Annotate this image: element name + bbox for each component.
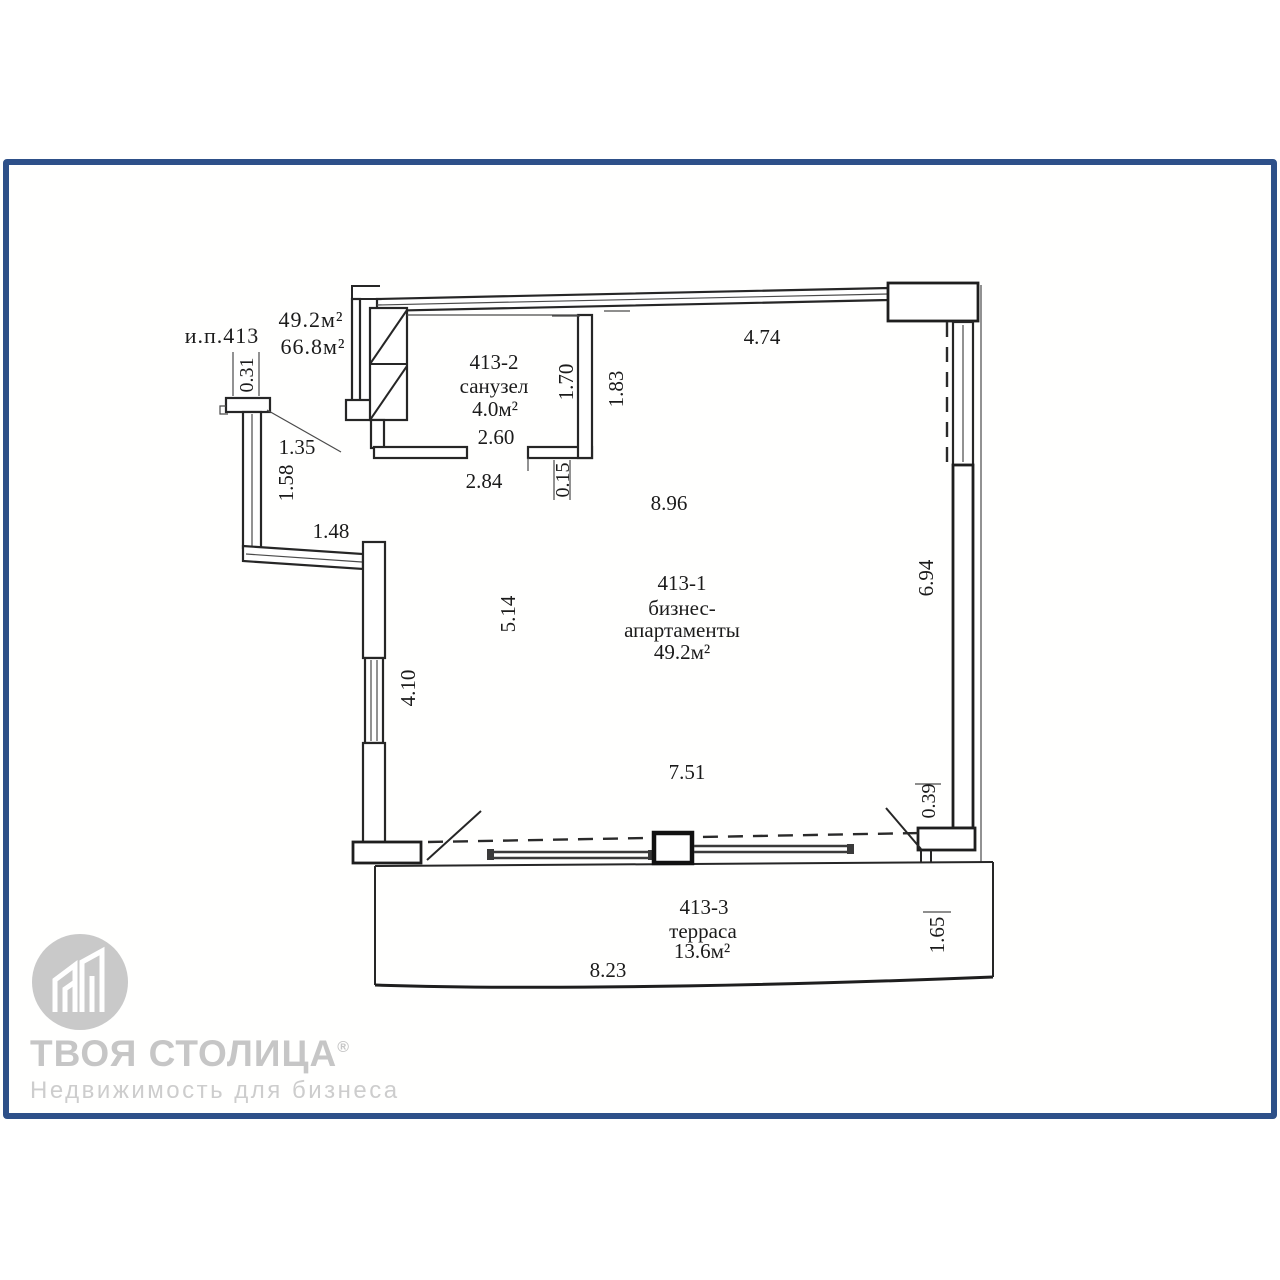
dim-1-35: 1.35 xyxy=(279,435,316,459)
bathroom-id: 413-2 xyxy=(470,350,519,374)
dim-2-60: 2.60 xyxy=(478,425,515,449)
apartment-name2: апартаменты xyxy=(624,618,740,642)
labels: и.п.413 49.2м² 66.8м² 0.31 1.35 1.58 1.4… xyxy=(185,307,949,982)
dim-4-74: 4.74 xyxy=(744,325,781,349)
bathroom-area: 4.0м² xyxy=(472,397,518,421)
unit-label: и.п.413 xyxy=(185,323,260,348)
agency-logo-title: ТВОЯ СТОЛИЦА® xyxy=(30,1033,400,1075)
apartment-name1: бизнес- xyxy=(648,596,716,620)
dim-1-83: 1.83 xyxy=(604,371,628,408)
dim-1-48: 1.48 xyxy=(313,519,350,543)
dim-4-10: 4.10 xyxy=(396,670,420,707)
apartment-id: 413-1 xyxy=(658,571,707,595)
registered-mark: ® xyxy=(337,1039,350,1056)
column xyxy=(654,833,692,863)
terrace-area: 13.6м² xyxy=(674,939,730,963)
scanned-floor-plan-page: и.п.413 49.2м² 66.8м² 0.31 1.35 1.58 1.4… xyxy=(0,0,1280,1280)
dim-2-84: 2.84 xyxy=(466,469,503,493)
dim-7-51: 7.51 xyxy=(669,760,706,784)
dim-1-58: 1.58 xyxy=(274,465,298,502)
vent-shaft xyxy=(370,308,407,420)
agency-logo: ТВОЯ СТОЛИЦА® Недвижимость для бизнеса xyxy=(30,932,400,1105)
dim-0-15: 0.15 xyxy=(552,463,574,498)
dim-8-96: 8.96 xyxy=(651,491,688,515)
apartment-area: 49.2м² xyxy=(654,640,710,664)
dim-0-31: 0.31 xyxy=(236,358,258,393)
agency-logo-icon xyxy=(30,932,130,1032)
agency-logo-subtitle: Недвижимость для бизнеса xyxy=(30,1077,400,1105)
dim-8-23: 8.23 xyxy=(590,958,627,982)
bathroom-name: санузел xyxy=(460,374,529,398)
balcony-glazing xyxy=(427,808,921,863)
dim-1-70: 1.70 xyxy=(554,364,578,401)
dim-0-39: 0.39 xyxy=(918,784,940,819)
area-line2: 66.8м² xyxy=(280,334,345,359)
dim-5-14: 5.14 xyxy=(496,595,520,632)
terrace-id: 413-3 xyxy=(680,895,729,919)
dim-6-94: 6.94 xyxy=(914,559,938,596)
area-line1: 49.2м² xyxy=(278,307,343,332)
dim-1-65: 1.65 xyxy=(925,917,949,954)
agency-brand: ТВОЯ СТОЛИЦА xyxy=(30,1033,337,1074)
